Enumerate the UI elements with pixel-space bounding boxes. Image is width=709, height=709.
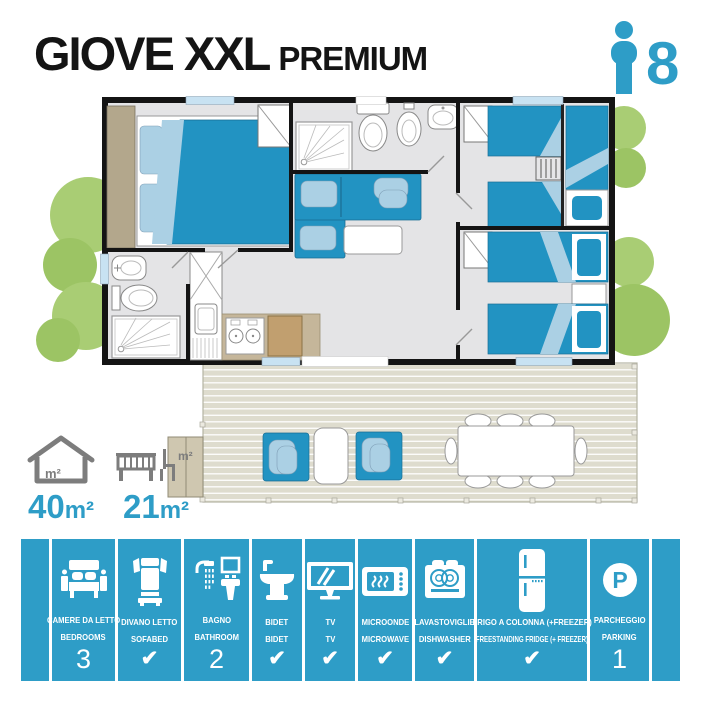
label-it: CAMERE DA LETTO [47, 612, 120, 629]
armchair [263, 433, 309, 481]
label-it: BIDET [266, 614, 289, 631]
label-en: MICROWAVE [361, 631, 408, 648]
single-bed [488, 232, 608, 282]
interior-area: m² 40m² [26, 433, 96, 523]
amenity-parking: P PARCHEGGIO PARKING 1 [590, 539, 649, 681]
house-icon: m² [26, 433, 96, 485]
label-en: BIDET [266, 631, 289, 648]
terrace-icon: m² [116, 439, 196, 485]
master-bedroom [107, 105, 291, 248]
living-room [295, 174, 421, 258]
terrace-area-value: 21m² [123, 490, 189, 523]
capacity-number: 8 [646, 34, 677, 94]
label-it: MICROONDE [361, 614, 409, 631]
label-en: BEDROOMS [61, 629, 106, 646]
terrace-area: m² 21m² [116, 439, 196, 523]
amenity-tv: TV TV ✔ [305, 539, 355, 681]
amenity-labels: BAGNO BATHROOM [192, 612, 241, 646]
occupancy-badge: 8 [605, 20, 677, 98]
amenity-value: ✔ [321, 648, 339, 669]
amenity-sofabed: DIVANO LETTO SOFABED ✔ [118, 539, 181, 681]
amenity-value: 2 [209, 646, 224, 673]
microwave-icon [360, 547, 410, 614]
title-main: GIOVE XXL [34, 26, 269, 81]
stove [226, 318, 264, 354]
washbasin [428, 105, 458, 129]
vertical-bed [566, 106, 608, 226]
amenity-bar: CAMERE DA LETTO BEDROOMS 3 DIVANO LETTO … [21, 539, 681, 681]
sofabed-icon [127, 547, 173, 614]
shower [296, 122, 352, 172]
label-it: FRIGO A COLONNA (+FREEZER) [472, 614, 591, 631]
wardrobe [107, 106, 135, 248]
label-en: DISHWASHER [419, 631, 471, 648]
tv-icon [305, 547, 355, 614]
amenity-labels: PARCHEGGIO PARKING [591, 612, 648, 646]
amenity-labels: TV TV [325, 614, 336, 648]
amenity-bidet: BIDET BIDET ✔ [252, 539, 302, 681]
svg-text:m²: m² [178, 449, 193, 463]
brochure-page: GIOVE XXL PREMIUM 8 m² 40m² [0, 0, 709, 709]
ladder [536, 157, 561, 180]
small-sink [112, 256, 146, 280]
toilet [357, 103, 389, 151]
closet [258, 105, 291, 147]
amenity-value: 3 [76, 646, 91, 673]
amenity-value: ✔ [268, 648, 286, 669]
label-it: TV [325, 614, 335, 631]
bidet-icon [255, 547, 299, 614]
amenity-labels: BIDET BIDET [264, 614, 290, 648]
label-en: TV [325, 631, 335, 648]
amenity-bedrooms: CAMERE DA LETTO BEDROOMS 3 [52, 539, 115, 681]
area-measurements: m² 40m² m² 21m² [26, 433, 196, 523]
label-it: BAGNO [202, 612, 230, 629]
deck-door [302, 357, 388, 367]
label-en: SOFABED [131, 631, 168, 648]
label-en: BATHROOM [194, 629, 238, 646]
single-bed [488, 304, 608, 354]
amenity-fridge: FRIGO A COLONNA (+FREEZER) FREESTANDING … [477, 539, 587, 681]
coffee-table [344, 226, 402, 254]
amenity-value: ✔ [141, 648, 159, 669]
svg-text:P: P [612, 567, 627, 593]
amenity-labels: FRIGO A COLONNA (+FREEZER) FREESTANDING … [454, 614, 610, 648]
amenity-value: ✔ [376, 648, 394, 669]
amenity-value: ✔ [523, 648, 541, 669]
double-bed-icon [59, 547, 109, 612]
amenity-labels: CAMERE DA LETTO BEDROOMS [43, 612, 124, 646]
label-en: FREESTANDING FRIDGE (+ FREEZER) [476, 631, 588, 648]
amenity-dishwasher: LAVASTOVIGLIE DISHWASHER ✔ [415, 539, 474, 681]
side-table [314, 428, 348, 484]
shower-2 [112, 316, 180, 358]
bar-endcap [652, 539, 680, 681]
label-it: PARCHEGGIO [594, 612, 646, 629]
fridge-icon [516, 547, 548, 614]
amenity-labels: LAVASTOVIGLIE DISHWASHER [411, 614, 478, 648]
nightstand [572, 284, 606, 304]
interior-area-value: 40m² [28, 490, 94, 523]
parking-icon: P [597, 547, 643, 612]
label-en: PARKING [602, 629, 637, 646]
page-title: GIOVE XXL PREMIUM [34, 26, 427, 81]
amenity-value: ✔ [436, 648, 454, 669]
amenity-value: 1 [612, 646, 627, 673]
bar-endcap [21, 539, 49, 681]
label-it: LAVASTOVIGLIE [414, 614, 474, 631]
amenity-labels: DIVANO LETTO SOFABED [118, 614, 181, 648]
bathroom-icon [192, 547, 242, 612]
amenity-bathroom: BAGNO BATHROOM 2 [184, 539, 249, 681]
dishwasher-icon [422, 547, 468, 614]
person-icon [605, 20, 643, 98]
drainer [193, 338, 217, 358]
kitchen-cabinet [268, 316, 302, 356]
svg-text:m²: m² [45, 466, 62, 481]
amenity-labels: MICROONDE MICROWAVE [359, 614, 412, 648]
armchair [356, 432, 402, 480]
toilet-2 [112, 285, 157, 311]
label-it: DIVANO LETTO [121, 614, 177, 631]
title-suffix: PREMIUM [278, 40, 427, 78]
amenity-microwave: MICROONDE MICROWAVE ✔ [358, 539, 412, 681]
